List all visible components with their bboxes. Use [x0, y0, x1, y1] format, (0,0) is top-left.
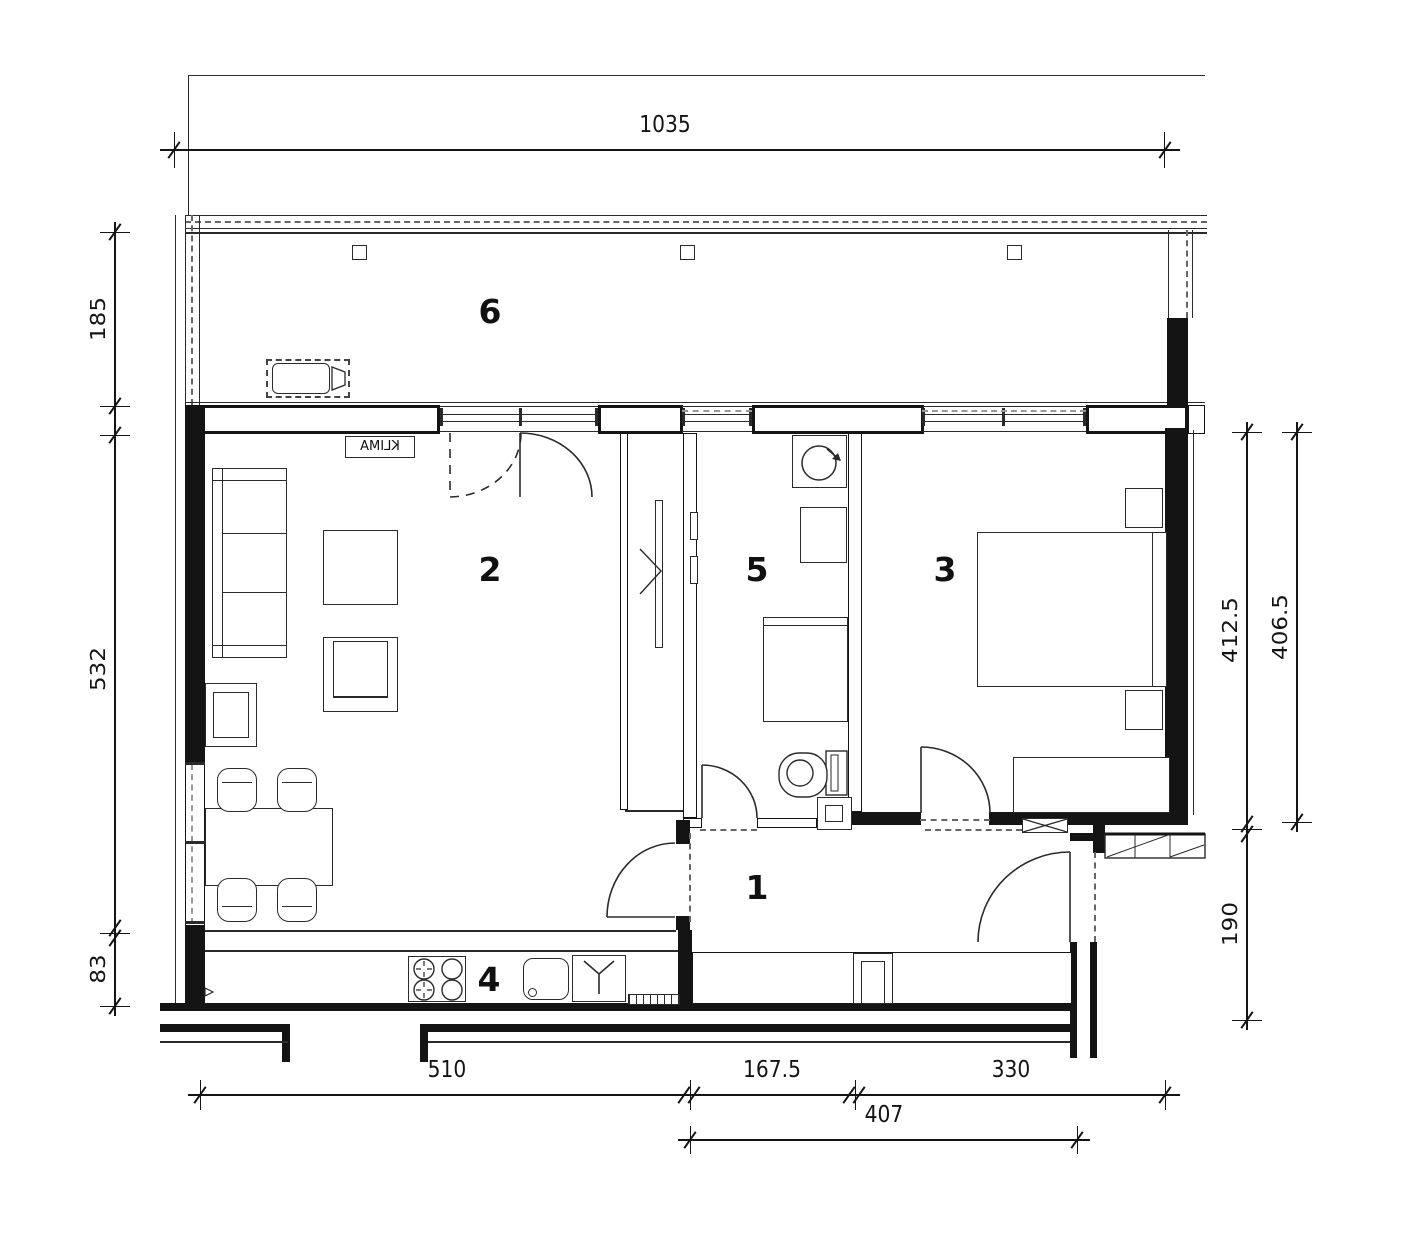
balcony-slab-edge	[185, 402, 1205, 403]
bed	[1152, 532, 1153, 687]
extension-line	[1232, 1020, 1262, 1021]
extension-line	[1232, 432, 1262, 433]
balcony-railing-left	[191, 215, 193, 405]
kitchen-back-line	[205, 930, 676, 932]
dining-table	[205, 808, 333, 886]
washing-machine	[763, 625, 848, 626]
wall-segment	[598, 405, 683, 434]
bedroom-shaft	[1022, 818, 1068, 833]
window-mullion	[185, 841, 205, 844]
wall-segment	[1090, 942, 1097, 1058]
window-mullion	[440, 408, 443, 426]
sofa	[212, 480, 287, 481]
dining-chair	[222, 906, 252, 907]
closet-bracket	[690, 512, 698, 540]
extension-line	[1282, 432, 1312, 433]
balcony-door-window	[440, 406, 598, 407]
wall-segment	[1188, 405, 1205, 434]
wall-segment	[160, 1024, 290, 1032]
washing-machine	[763, 617, 848, 722]
dim-living-depth: 532	[88, 639, 111, 699]
extension-line	[1282, 822, 1312, 823]
hall-door-dashed	[689, 833, 691, 922]
extension-line	[100, 435, 130, 436]
wall-segment	[1167, 318, 1188, 408]
sofa	[212, 468, 287, 658]
window-mullion	[519, 408, 522, 426]
bedroom-door-dashed	[920, 819, 990, 821]
wall-segment	[160, 1041, 288, 1043]
sofa	[222, 468, 223, 658]
room-label-bedroom: 3	[925, 550, 965, 589]
roof-outline	[188, 75, 1205, 76]
bedroom-window	[922, 406, 1086, 407]
floor-plan: 6 2 5 3 1 4 KLIMA	[0, 0, 1422, 1236]
wall-segment	[683, 433, 697, 818]
overhang-dashed	[922, 410, 1086, 412]
living-window-left	[185, 762, 205, 926]
room-label-kitchen: 4	[469, 960, 509, 999]
hall-boundary-dashed	[700, 829, 757, 831]
balcony-railing	[185, 228, 1207, 229]
bathroom-window	[682, 406, 752, 407]
water-heater	[792, 435, 847, 488]
dimension-line	[160, 149, 1180, 151]
bathroom-window	[682, 414, 752, 415]
wall-segment	[185, 405, 205, 762]
dim-top-width: 1035	[621, 112, 709, 138]
extension-line	[1164, 132, 1165, 168]
dimension-line	[678, 1139, 1090, 1141]
dim-entry-depth: 190	[1220, 894, 1243, 954]
wall-segment	[620, 433, 628, 810]
extension-line	[200, 1080, 201, 1110]
room-label-balcony: 6	[470, 292, 510, 331]
extension-line	[100, 232, 130, 233]
sofa	[222, 592, 287, 593]
wall-segment	[282, 1024, 290, 1062]
extension-line	[1232, 829, 1262, 830]
balcony-railing	[185, 232, 1207, 234]
balcony-post	[1007, 245, 1022, 260]
dim-bedroom-depth-outer: 406.5	[1270, 587, 1293, 667]
balcony-divider	[1186, 230, 1188, 318]
dim-bath-width: 167.5	[728, 1057, 816, 1083]
extension-line	[690, 1126, 691, 1154]
window-mullion	[595, 408, 598, 426]
wall-segment	[185, 926, 205, 1008]
wall-segment	[752, 405, 924, 434]
balcony-post	[680, 245, 695, 260]
dining-chair	[222, 782, 252, 783]
extension-line	[1077, 1126, 1078, 1154]
klima-label: KLIMA	[345, 436, 415, 458]
balcony-door-window	[440, 431, 598, 432]
dishwasher	[572, 955, 626, 1002]
wall-segment	[428, 1041, 1072, 1043]
nightstand	[1125, 488, 1163, 528]
balcony-railing-left	[185, 215, 186, 405]
sofa	[222, 533, 287, 534]
dresser	[1013, 757, 1170, 813]
window-mullion	[185, 921, 205, 924]
roof-outline	[188, 75, 189, 215]
facade-line	[175, 215, 176, 1008]
dining-chair	[277, 878, 317, 922]
balcony-divider	[1168, 230, 1169, 318]
wall-segment	[420, 1024, 1072, 1032]
dimension-line	[114, 222, 116, 1016]
dining-chair	[217, 768, 257, 812]
closet-sliding-door	[655, 500, 663, 648]
wall-segment	[989, 812, 1188, 825]
balcony-railing	[185, 215, 1207, 216]
dim-bedroom-width: 330	[967, 1057, 1055, 1083]
room-label-living: 2	[470, 550, 510, 589]
ac-outdoor-unit	[272, 363, 330, 394]
wall-segment	[676, 820, 690, 844]
bed	[977, 532, 1167, 687]
wall-segment	[1093, 823, 1105, 853]
dim-hall-width: 407	[840, 1102, 928, 1128]
wall-segment	[1070, 833, 1095, 841]
extension-line	[100, 933, 130, 934]
sofa	[212, 645, 287, 646]
extension-line	[100, 406, 130, 407]
dim-balcony-depth: 185	[88, 289, 111, 349]
armchair	[333, 697, 388, 698]
entry-niche	[861, 961, 885, 1004]
balcony-post	[352, 245, 367, 260]
stove	[408, 956, 466, 1002]
wall-segment	[185, 405, 440, 434]
dimension-line	[1246, 422, 1248, 1030]
wall-segment	[848, 433, 862, 812]
closet-bracket	[690, 556, 698, 584]
tv-cabinet	[213, 692, 249, 738]
balcony-divider	[1192, 230, 1193, 318]
bathroom-window	[682, 431, 752, 432]
dining-chair	[217, 878, 257, 922]
washbasin	[800, 507, 847, 563]
wall-segment	[757, 818, 817, 828]
balcony-railing-left	[199, 215, 200, 405]
dim-kitchen-depth: 83	[88, 939, 111, 999]
nightstand	[1125, 690, 1163, 730]
facade-line	[1193, 430, 1194, 815]
plumbing-shaft	[825, 805, 843, 822]
wall-segment	[848, 812, 921, 825]
living-window-left	[191, 764, 193, 924]
wall-segment	[676, 916, 690, 930]
entry-door-dashed	[1094, 852, 1096, 942]
dining-chair	[277, 768, 317, 812]
kitchen-sink	[528, 988, 537, 997]
extension-line	[174, 132, 175, 168]
extension-line	[1165, 1080, 1166, 1110]
room-label-hall: 1	[737, 868, 777, 907]
closet-edge	[625, 810, 683, 812]
dish-drainer	[628, 994, 680, 1005]
hall-boundary-dashed	[925, 829, 1022, 831]
overhang-dashed	[682, 410, 752, 412]
dining-chair	[282, 782, 312, 783]
wall-segment	[678, 930, 692, 1005]
window-mullion	[185, 762, 205, 765]
room-label-bathroom: 5	[737, 550, 777, 589]
bathroom-window	[682, 421, 752, 422]
dim-bedroom-depth-inner: 412.5	[1220, 590, 1243, 670]
coffee-table	[323, 530, 398, 605]
armchair	[333, 641, 388, 697]
extension-line	[690, 1080, 691, 1110]
dining-chair	[282, 906, 312, 907]
dim-living-width: 510	[403, 1057, 491, 1083]
extension-line	[100, 1006, 130, 1007]
wall-segment	[160, 1003, 205, 1011]
balcony-railing	[185, 221, 1207, 223]
bedroom-window	[922, 431, 1086, 432]
kitchen-counter-edge	[205, 950, 678, 952]
dimension-line	[1296, 422, 1298, 832]
